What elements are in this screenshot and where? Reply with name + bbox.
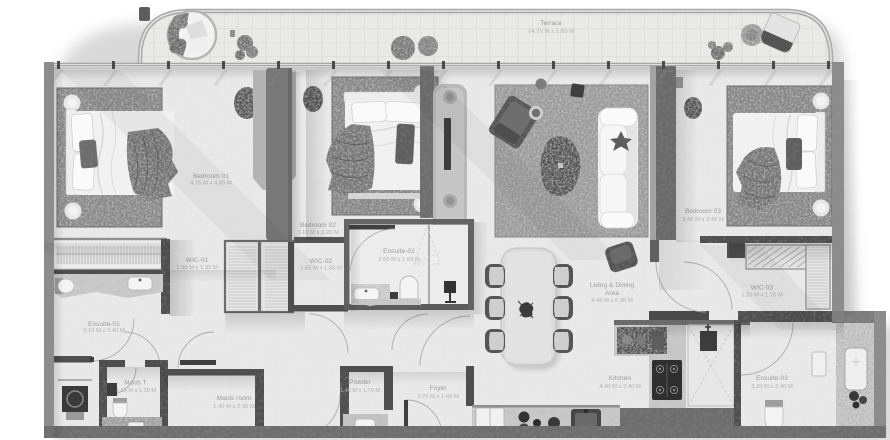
svg-text:Terrace: Terrace <box>540 20 562 27</box>
svg-text:1.40 M x 1.70 M: 1.40 M x 1.70 M <box>340 388 380 394</box>
svg-text:3.20 M x 2.40 M: 3.20 M x 2.40 M <box>751 384 793 390</box>
svg-text:Ensuite-03: Ensuite-03 <box>756 375 788 382</box>
svg-text:Ensuite-02: Ensuite-02 <box>383 248 415 255</box>
svg-text:1.55 M x 1.30 M: 1.55 M x 1.30 M <box>116 388 156 394</box>
svg-text:3.10 M x 2.40 M: 3.10 M x 2.40 M <box>83 328 125 334</box>
svg-text:Kitchen: Kitchen <box>609 375 631 382</box>
svg-text:4.45 M x 6.30 M: 4.45 M x 6.30 M <box>591 298 633 304</box>
svg-text:Ensuite-01: Ensuite-01 <box>88 321 120 328</box>
svg-text:Maids room: Maids room <box>217 395 252 402</box>
svg-text:Living & Dining: Living & Dining <box>590 282 635 289</box>
svg-text:Foyer: Foyer <box>430 385 448 392</box>
svg-text:2.60 M x 1.60 M: 2.60 M x 1.60 M <box>378 257 420 263</box>
svg-text:Area: Area <box>605 290 619 297</box>
svg-text:3.70 M x 1.40 M: 3.70 M x 1.40 M <box>417 394 459 400</box>
svg-text:1.40 M x 2.95 M: 1.40 M x 2.95 M <box>213 404 255 410</box>
svg-text:4.40 M x 2.40 M: 4.40 M x 2.40 M <box>599 384 641 390</box>
svg-text:14.75 M x 1.60 M: 14.75 M x 1.60 M <box>528 29 574 35</box>
